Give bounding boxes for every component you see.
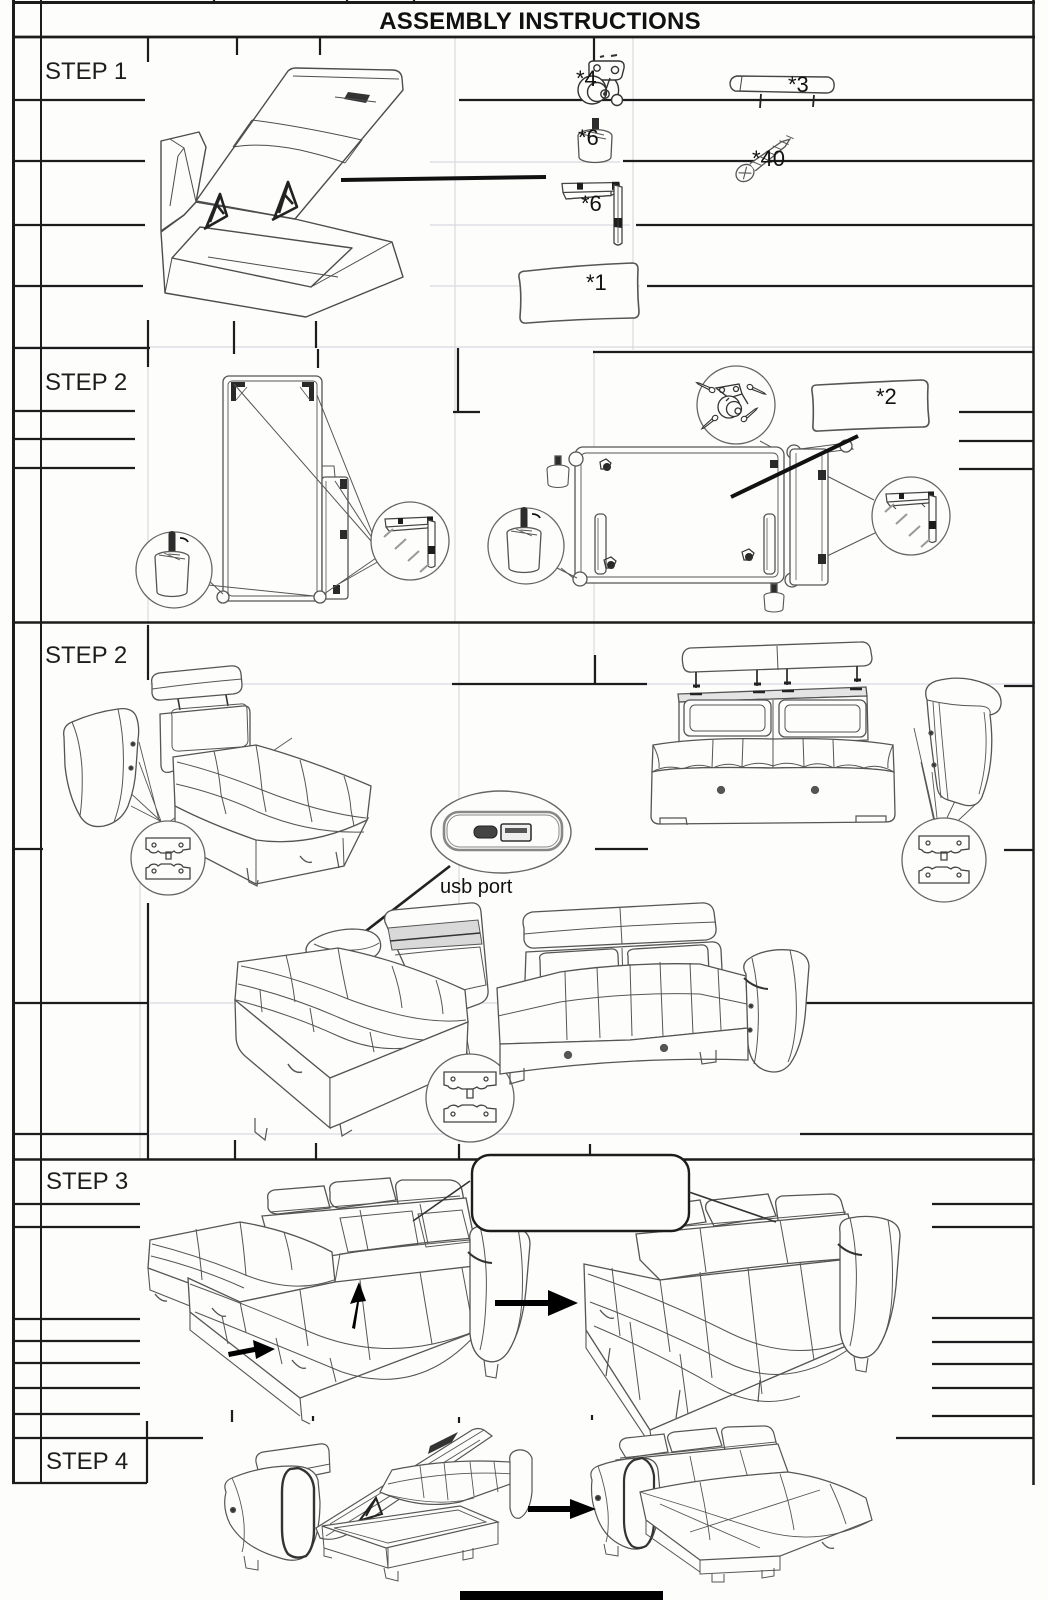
svg-text:STEP 3: STEP 3 [46, 1168, 128, 1195]
svg-text:STEP 2: STEP 2 [45, 369, 127, 396]
svg-text:*1: *1 [586, 270, 607, 295]
svg-text:STEP 1: STEP 1 [45, 58, 127, 85]
svg-text:usb port: usb port [440, 876, 513, 898]
svg-text:*2: *2 [876, 384, 897, 409]
svg-text:*6: *6 [581, 191, 602, 216]
svg-text:STEP 2: STEP 2 [45, 642, 127, 669]
svg-text:*3: *3 [788, 72, 809, 97]
svg-text:ASSEMBLY INSTRUCTIONS: ASSEMBLY INSTRUCTIONS [379, 8, 701, 35]
svg-text:*4: *4 [576, 66, 597, 91]
svg-text:STEP 4: STEP 4 [46, 1448, 128, 1475]
svg-text:*6: *6 [578, 125, 599, 150]
svg-text:*40: *40 [752, 146, 785, 171]
